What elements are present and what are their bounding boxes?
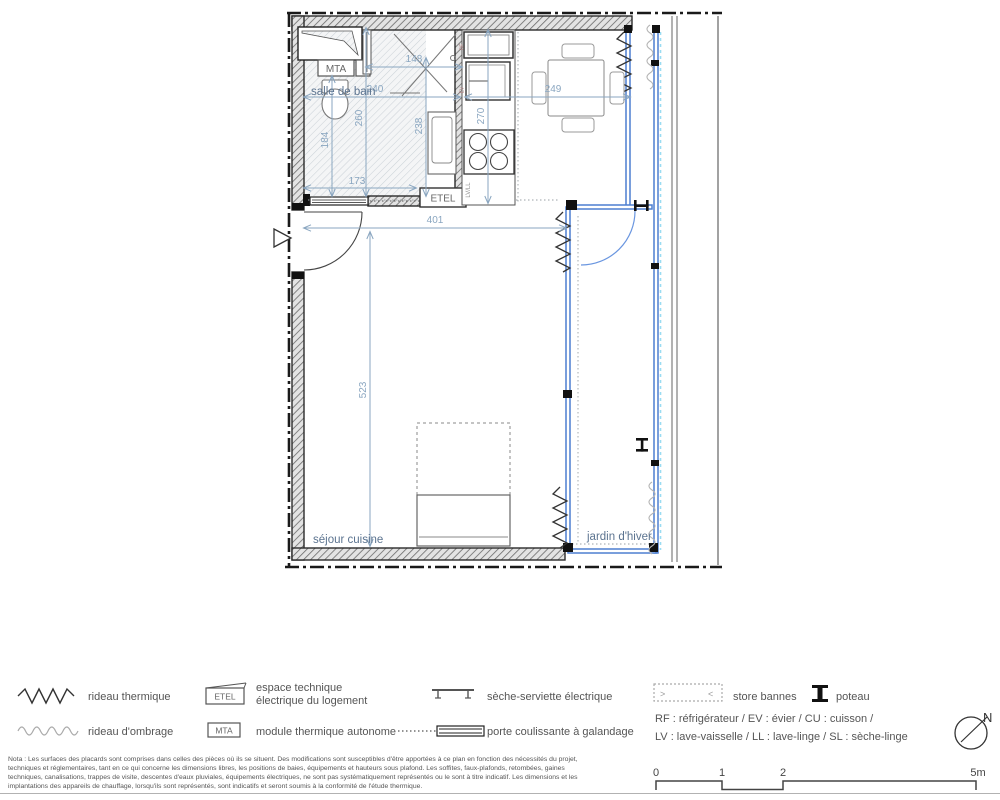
scale-0: 0 — [653, 767, 659, 779]
svg-text:<: < — [708, 689, 713, 699]
poteau-icon — [812, 685, 828, 702]
nota-text: Nota : Les surfaces des placards sont co… — [8, 756, 578, 790]
facade-edge-lines — [672, 16, 718, 565]
scale-2: 2 — [780, 767, 786, 779]
legend-mta-label: MTA — [215, 726, 233, 736]
legend: rideau thermique ETEL espace technique é… — [18, 682, 908, 743]
lv-ll-label: LV/LL — [466, 182, 472, 198]
dim-148: 148 — [406, 54, 423, 65]
door-jambs — [292, 194, 310, 279]
floor-plan-sheet: MTA ETEL LV/LL RF EV — [0, 0, 1000, 800]
rideau-thermique-icon — [18, 689, 74, 703]
scale-bar: 0 1 2 5m — [653, 767, 986, 790]
glazing-dining-winter-garden — [626, 30, 630, 207]
chair-bottom — [562, 118, 594, 132]
kitchen-block: LV/LL RF EV — [460, 30, 516, 205]
porte-coulissante-icon — [398, 726, 484, 736]
legend-porte-coulissante: porte coulissante à galandage — [487, 726, 634, 738]
floor-plan-drawing: MTA ETEL LV/LL RF EV — [0, 0, 1000, 800]
nota-line-2: techniques et réglementaires, tant en ce… — [8, 765, 565, 772]
north-label: N — [983, 710, 992, 725]
etel-box-plan: ETEL — [420, 188, 466, 207]
ev-label: EV — [460, 86, 466, 93]
bed-mattress — [417, 495, 510, 546]
seche-serviette-icon — [432, 690, 474, 698]
north-arrow-icon: N — [955, 710, 992, 749]
dim-184: 184 — [320, 131, 331, 148]
rideau-thermique-bottom — [553, 487, 567, 548]
bed — [417, 423, 510, 546]
etel-label-plan: ETEL — [430, 194, 455, 205]
nota-line-3: techniques, canalisations, trappes de vi… — [8, 774, 578, 781]
etel-icon: ETEL — [206, 683, 246, 704]
room-label-living: séjour cuisine — [313, 534, 383, 546]
legend-abbrev-line2: LV : lave-vaisselle / LL : lave-linge / … — [655, 731, 908, 743]
svg-text:>: > — [660, 689, 665, 699]
nota-line-1: Nota : Les surfaces des placards sont co… — [8, 756, 578, 763]
dim-523: 523 — [358, 381, 369, 398]
winter-garden-door — [581, 211, 635, 265]
legend-etel-desc1: espace technique — [256, 682, 342, 694]
wall-bottom — [292, 548, 565, 560]
legend-etel-desc2: électrique du logement — [256, 695, 367, 707]
glazing-facade — [654, 30, 658, 553]
legend-mta-desc: module thermique autonome — [256, 726, 396, 738]
scale-5m: 5m — [970, 767, 985, 779]
poteau-symbol-plan-right — [636, 438, 648, 452]
legend-poteau: poteau — [836, 691, 870, 703]
glazing-partition-living — [566, 207, 570, 550]
bed-headboard-zone — [417, 423, 510, 495]
legend-seche-serviette: sèche-serviette électrique — [487, 691, 612, 703]
entry-door — [304, 212, 362, 270]
dim-260: 260 — [354, 109, 365, 126]
rideau-ombrage-top — [647, 25, 653, 89]
scale-1: 1 — [719, 767, 725, 779]
dim-249: 249 — [545, 84, 562, 95]
legend-etel-label: ETEL — [214, 692, 236, 702]
legend-store-bannes: store bannes — [733, 691, 797, 703]
washbasin-vanity — [428, 112, 456, 174]
legend-rideau-ombrage: rideau d'ombrage — [88, 726, 173, 738]
nota-line-4: implantations des appareils de chauffage… — [8, 783, 422, 790]
room-label-bathroom: salle de bain — [311, 86, 376, 98]
rf-label: RF — [460, 44, 466, 51]
store-bannes-icon: > < — [654, 684, 722, 701]
dim-238: 238 — [414, 117, 425, 134]
dim-401: 401 — [427, 215, 444, 226]
room-label-winter-garden: jardin d'hiver — [586, 531, 652, 543]
legend-rideau-thermique: rideau thermique — [88, 691, 171, 703]
chair-top — [562, 44, 594, 58]
legend-abbrev-line1: RF : réfrigérateur / EV : évier / CU : c… — [655, 713, 874, 725]
dim-270: 270 — [476, 107, 487, 124]
mta-icon: MTA — [208, 723, 240, 737]
wall-left-lower — [292, 272, 304, 560]
mta-box-plan: MTA — [318, 60, 370, 76]
rideau-ombrage-icon — [18, 727, 78, 735]
mta-label-plan: MTA — [326, 64, 347, 75]
bathtub — [298, 27, 362, 60]
glazing-winter-garden-bottom — [568, 549, 656, 553]
dim-173: 173 — [349, 176, 366, 187]
chair-right — [610, 72, 624, 104]
